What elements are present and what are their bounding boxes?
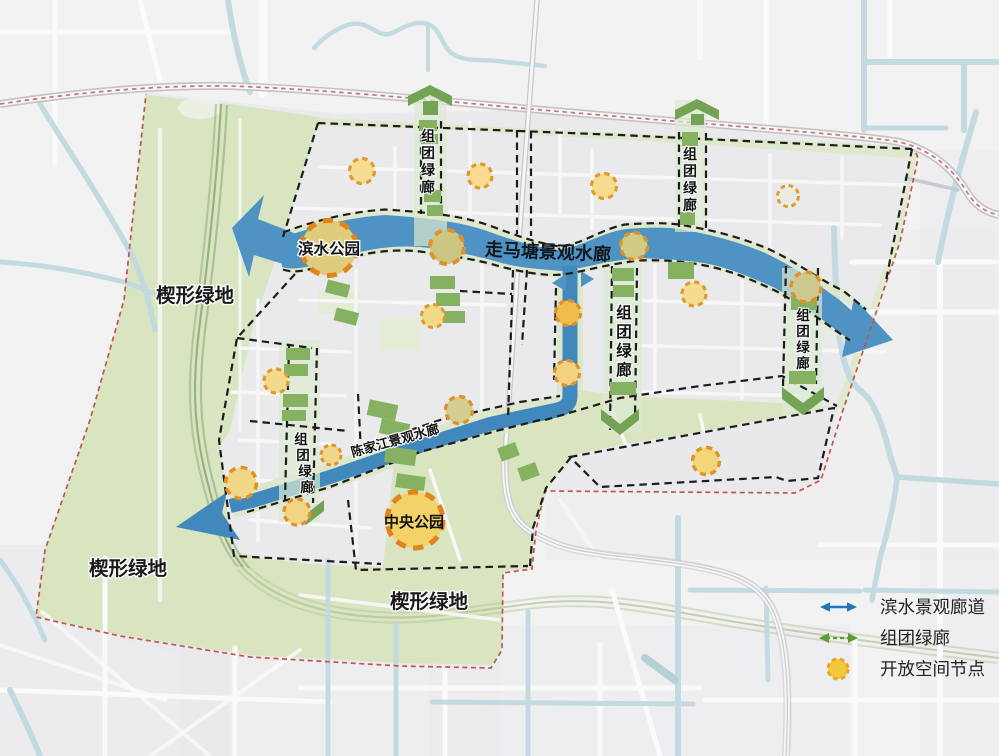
svg-text:绿: 绿 <box>421 162 436 178</box>
svg-text:组: 组 <box>616 303 632 322</box>
svg-text:团: 团 <box>296 448 310 463</box>
svg-text:楔形绿地: 楔形绿地 <box>390 590 469 613</box>
svg-text:楔形绿地: 楔形绿地 <box>156 284 235 307</box>
svg-text:团: 团 <box>683 163 697 179</box>
svg-text:组团绿廊: 组团绿廊 <box>880 628 950 648</box>
svg-text:滨水景观廊道: 滨水景观廊道 <box>880 597 985 617</box>
svg-text:绿: 绿 <box>616 341 632 360</box>
svg-text:滨水公园: 滨水公园 <box>298 239 360 258</box>
svg-text:中央公园: 中央公园 <box>384 513 444 531</box>
svg-text:廊: 廊 <box>421 179 435 195</box>
svg-text:组: 组 <box>421 128 435 144</box>
svg-text:团: 团 <box>616 323 632 341</box>
svg-text:廊: 廊 <box>796 355 810 371</box>
svg-text:廊: 廊 <box>616 360 632 379</box>
svg-text:组: 组 <box>294 431 308 447</box>
svg-text:绿: 绿 <box>298 463 312 479</box>
svg-text:绿: 绿 <box>683 180 698 196</box>
svg-text:团: 团 <box>421 145 435 161</box>
svg-text:楔形绿地: 楔形绿地 <box>89 557 168 580</box>
svg-text:绿: 绿 <box>796 339 810 355</box>
svg-text:组: 组 <box>683 146 697 162</box>
svg-text:开放空间节点: 开放空间节点 <box>880 659 985 679</box>
svg-text:廊: 廊 <box>683 197 697 213</box>
svg-text:团: 团 <box>796 324 810 339</box>
svg-text:廊: 廊 <box>300 479 314 495</box>
svg-text:组: 组 <box>796 307 810 323</box>
